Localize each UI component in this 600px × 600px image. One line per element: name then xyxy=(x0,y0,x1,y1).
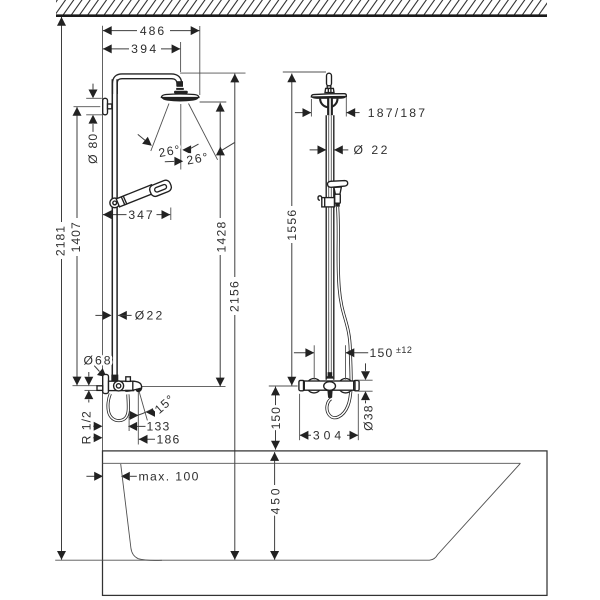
svg-text:1407: 1407 xyxy=(69,221,83,252)
svg-text:Ø68: Ø68 xyxy=(84,353,113,367)
svg-text:2181: 2181 xyxy=(54,225,68,256)
svg-text:150: 150 xyxy=(269,406,283,429)
svg-text:Ø22: Ø22 xyxy=(135,309,165,323)
svg-text:1428: 1428 xyxy=(214,221,228,253)
svg-text:Ø 80: Ø 80 xyxy=(86,133,100,164)
svg-text:486: 486 xyxy=(140,24,166,38)
svg-text:304: 304 xyxy=(313,429,345,443)
svg-text:Ø38: Ø38 xyxy=(361,404,375,431)
svg-text:Ø 22: Ø 22 xyxy=(354,143,390,157)
svg-text:133: 133 xyxy=(147,420,171,434)
svg-text:450: 450 xyxy=(269,486,283,515)
svg-text:187/187: 187/187 xyxy=(368,106,427,120)
svg-text:max. 100: max. 100 xyxy=(139,470,200,484)
svg-text:394: 394 xyxy=(131,42,158,56)
svg-text:347: 347 xyxy=(128,208,154,222)
svg-text:R 1/2: R 1/2 xyxy=(79,410,93,444)
svg-text:2156: 2156 xyxy=(228,280,242,312)
svg-text:1556: 1556 xyxy=(285,209,299,241)
svg-text:186: 186 xyxy=(157,433,181,447)
